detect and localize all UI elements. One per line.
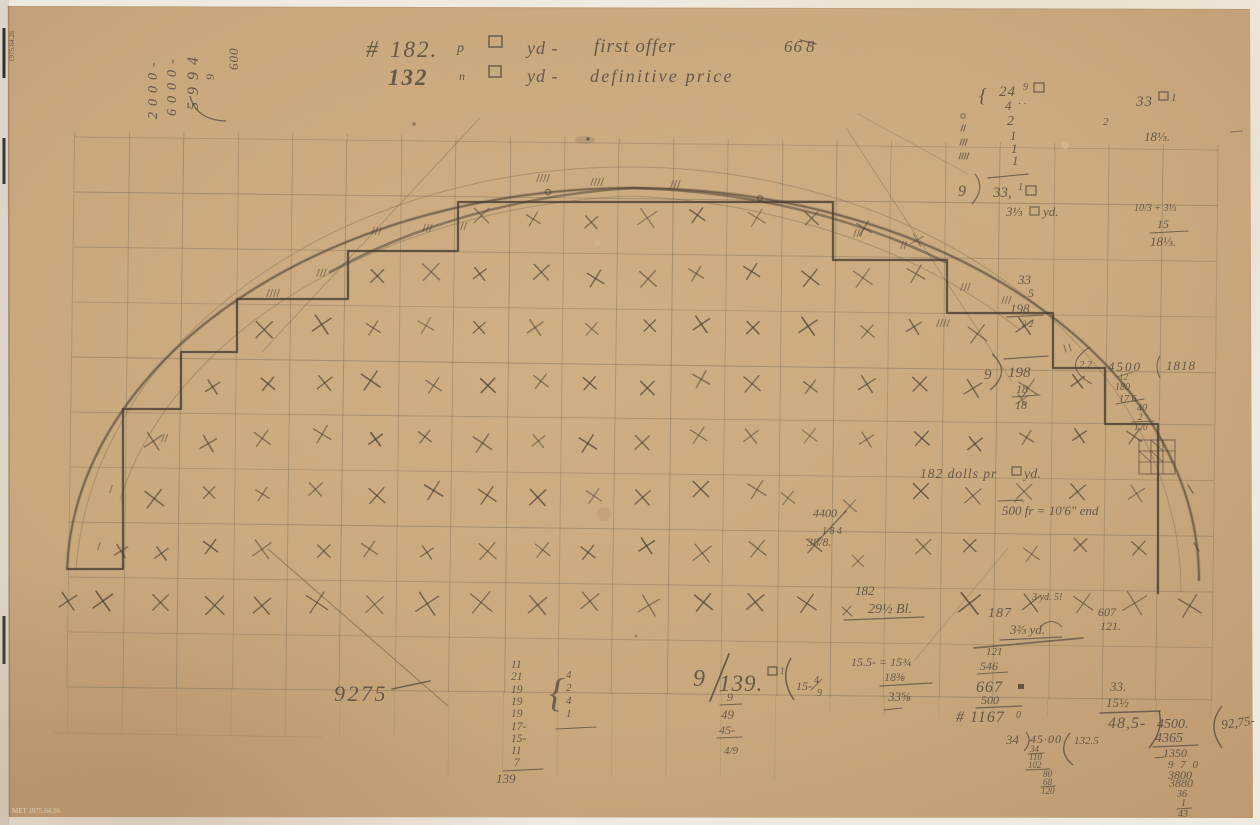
svg-text:1: 1 (780, 666, 785, 676)
svg-text:139: 139 (496, 771, 516, 786)
svg-text:10/3 + 3⅓: 10/3 + 3⅓ (1134, 203, 1177, 214)
svg-text:n: n (459, 69, 465, 83)
svg-text:29½ Bl.: 29½ Bl. (868, 602, 912, 617)
svg-text:4365: 4365 (1155, 731, 1183, 746)
svg-text:48,5-: 48,5- (1108, 715, 1146, 732)
svg-text:1: 1 (1012, 153, 1019, 168)
svg-text:19: 19 (511, 684, 523, 696)
svg-text:5: 5 (1028, 286, 1034, 300)
svg-text:first offer: first offer (594, 36, 676, 57)
svg-text:4400: 4400 (813, 506, 837, 520)
svg-text:yd.: yd. (1041, 204, 1059, 219)
svg-text:4/9: 4/9 (724, 745, 739, 757)
svg-text:120: 120 (1134, 422, 1148, 432)
svg-text:2: 2 (1103, 116, 1109, 128)
svg-text:500: 500 (981, 693, 999, 707)
svg-text:2: 2 (1007, 114, 1014, 129)
svg-text:3⅓: 3⅓ (1005, 204, 1023, 219)
svg-text:definitive price: definitive price (590, 66, 734, 86)
svg-text:9275: 9275 (334, 681, 388, 706)
svg-text:2: 2 (566, 682, 572, 694)
svg-text:49: 49 (721, 707, 735, 722)
svg-text:18: 18 (1016, 382, 1028, 396)
svg-text:6000-: 6000- (165, 53, 180, 116)
svg-text:15½: 15½ (1106, 695, 1129, 710)
svg-text:11: 11 (511, 659, 522, 671)
svg-text:1975.64.26: 1975.64.26 (8, 30, 16, 62)
svg-text:17-: 17- (511, 721, 527, 733)
svg-text:1818: 1818 (1166, 358, 1196, 373)
svg-text:187: 187 (988, 606, 1012, 621)
svg-text:1167: 1167 (970, 709, 1005, 726)
svg-text:15.5- = 15¾: 15.5- = 15¾ (851, 655, 911, 669)
svg-text:1: 1 (566, 708, 572, 720)
svg-text:yd.: yd. (1022, 467, 1041, 482)
svg-text:1350: 1350 (1163, 746, 1187, 760)
svg-text:4: 4 (566, 695, 572, 707)
svg-text:182 dolls pr: 182 dolls pr (920, 466, 997, 481)
svg-text:4: 4 (1005, 98, 1012, 113)
svg-text:3880: 3880 (1168, 776, 1193, 790)
svg-text:yd -: yd - (525, 38, 558, 58)
svg-text:500 fr = 10ʹ6ʺ end: 500 fr = 10ʹ6ʺ end (1002, 503, 1099, 518)
svg-text:9: 9 (1023, 82, 1028, 93)
svg-text:9: 9 (203, 74, 217, 80)
svg-text:18⅓.: 18⅓. (1150, 234, 1176, 249)
svg-text:132: 132 (388, 65, 429, 90)
svg-text:2 2: 2 2 (1022, 319, 1034, 329)
svg-text:182.: 182. (390, 37, 438, 62)
svg-text:546: 546 (980, 659, 998, 673)
svg-text:4500.: 4500. (1157, 717, 1189, 732)
svg-text:38/8.: 38/8. (806, 535, 831, 549)
svg-text:33: 33 (1017, 272, 1032, 287)
svg-text:182: 182 (855, 583, 875, 598)
svg-text:· ·: · · (1018, 98, 1027, 110)
svg-text:9: 9 (984, 367, 992, 383)
svg-text:33,: 33, (992, 185, 1012, 201)
svg-text:18: 18 (1015, 398, 1027, 412)
svg-text:132.5: 132.5 (1074, 735, 1099, 747)
svg-text:180: 180 (1115, 382, 1130, 393)
svg-text:19: 19 (511, 708, 523, 720)
svg-text:4: 4 (566, 669, 572, 681)
svg-text:139.: 139. (719, 671, 763, 696)
svg-text:121: 121 (986, 646, 1003, 658)
svg-text:2000-: 2000- (146, 56, 161, 119)
svg-text:9: 9 (958, 183, 966, 200)
svg-text:11: 11 (511, 745, 522, 757)
svg-text:2: 2 (1138, 412, 1143, 422)
svg-text:121.: 121. (1100, 619, 1121, 633)
svg-text:8: 8 (806, 37, 815, 56)
svg-text:1: 1 (1181, 798, 1186, 809)
svg-text:198: 198 (1010, 301, 1030, 316)
svg-text:9: 9 (727, 690, 733, 704)
svg-text:p: p (456, 41, 464, 56)
svg-text:22: 22 (1079, 359, 1094, 371)
svg-text:33⅝: 33⅝ (887, 689, 911, 704)
svg-text:3⅔ yd.: 3⅔ yd. (1009, 622, 1045, 637)
svg-text:607: 607 (1098, 605, 1117, 619)
svg-text:120: 120 (1041, 786, 1055, 796)
svg-text:9: 9 (693, 666, 705, 692)
svg-text:600: 600 (226, 48, 241, 71)
svg-text:1: 1 (1018, 182, 1023, 193)
svg-text:15-: 15- (511, 733, 527, 745)
svg-text:MET 1975.64.26: MET 1975.64.26 (12, 807, 60, 815)
svg-text:198: 198 (1008, 365, 1031, 381)
svg-text:15: 15 (1157, 217, 1169, 231)
svg-text:yd -: yd - (525, 66, 558, 86)
svg-text:{: { (549, 670, 565, 715)
svg-text:3 yd. 5!: 3 yd. 5! (1031, 592, 1062, 603)
svg-text:0: 0 (1016, 710, 1021, 721)
svg-text:19: 19 (511, 696, 523, 708)
svg-text:15-: 15- (796, 679, 812, 693)
svg-text:34: 34 (1005, 732, 1020, 747)
svg-text:9: 9 (817, 688, 822, 699)
svg-text:102: 102 (1028, 760, 1042, 770)
svg-text:45-: 45- (719, 723, 735, 737)
svg-text:18⅜: 18⅜ (884, 670, 905, 684)
svg-text:1: 1 (1171, 92, 1177, 104)
svg-text:5994: 5994 (185, 50, 202, 110)
svg-text:21: 21 (511, 671, 523, 683)
svg-text:{: { (979, 85, 987, 107)
svg-text:#: # (956, 709, 965, 726)
svg-text:43: 43 (1178, 809, 1188, 820)
svg-text:18⅓.: 18⅓. (1144, 129, 1170, 144)
svg-text:33.: 33. (1109, 679, 1126, 694)
svg-text:#: # (366, 37, 379, 63)
svg-text:33: 33 (1135, 94, 1153, 110)
